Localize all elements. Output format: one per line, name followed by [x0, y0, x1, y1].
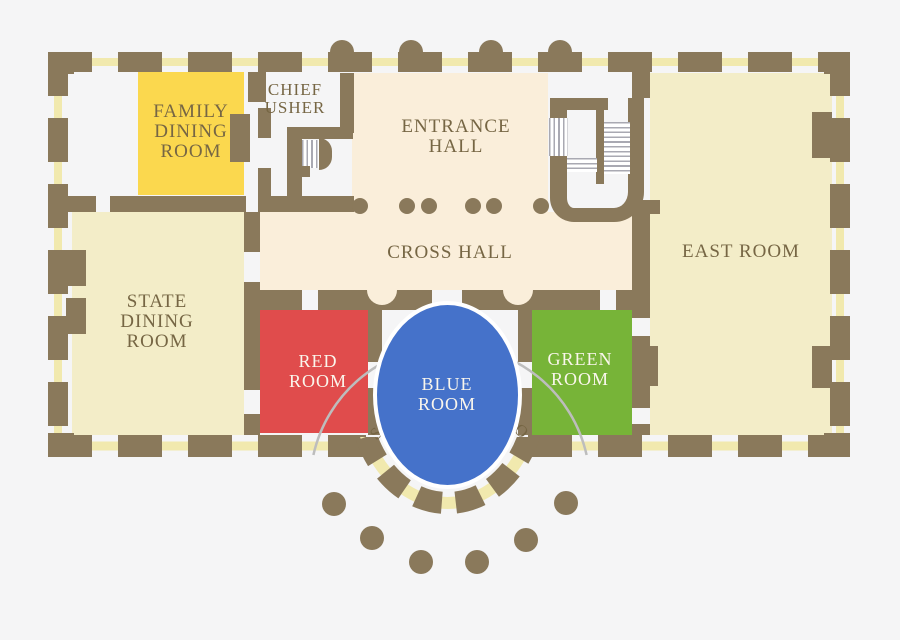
label-line: ROOM	[126, 332, 187, 352]
label-line: HALL	[429, 137, 484, 157]
label-line: RED	[298, 351, 337, 371]
label-line: EAST ROOM	[682, 242, 800, 262]
door-gap-green-east-b	[632, 408, 650, 424]
portico-column-3	[409, 550, 433, 574]
door-gap-state-dining-a	[244, 252, 260, 282]
label-blue-room: BLUE ROOM	[418, 374, 476, 414]
floor-plan: SOUTH PORTICO FAMILY DINING ROOM CHIEF U…	[0, 0, 900, 640]
label-line: ROOM	[289, 371, 347, 391]
label-family-dining: FAMILY DINING ROOM	[153, 102, 229, 162]
door-gap-green-east	[632, 318, 650, 336]
wall-bay-junction-west	[346, 435, 366, 457]
label-chief-usher: CHIEF USHER	[265, 81, 326, 117]
wall-east-room-door-tab	[650, 346, 658, 386]
outer-wall-west	[48, 52, 68, 457]
north-column-2	[399, 40, 423, 53]
wall-family-dining-tab	[230, 114, 250, 162]
grand-staircase-connector	[634, 200, 660, 214]
wall-east-block-b	[812, 346, 832, 388]
label-east-room: EAST ROOM	[682, 242, 800, 262]
outer-wall-south-east	[528, 435, 850, 457]
hall-column-3	[421, 198, 437, 214]
portico-column-6	[554, 491, 578, 515]
north-column-3	[479, 40, 503, 53]
portico-column-4	[465, 550, 489, 574]
grand-staircase-divider	[596, 106, 604, 184]
grand-staircase-steps-west	[549, 118, 568, 156]
label-line: ENTRANCE	[401, 117, 510, 137]
label-entrance-hall: ENTRANCE HALL	[401, 117, 510, 157]
label-line: CROSS HALL	[387, 243, 513, 263]
outer-wall-north	[48, 52, 850, 72]
label-line: CHIEF	[268, 81, 322, 99]
door-gap-state-dining-b	[244, 390, 260, 414]
north-column-4	[548, 40, 572, 53]
portico-column-2	[360, 526, 384, 550]
wall-east-room-west-a	[632, 72, 650, 98]
door-gap-cross-a	[302, 290, 318, 310]
portico-column-1	[322, 492, 346, 516]
label-line: DINING	[154, 122, 228, 142]
label-green-room: GREEN ROOM	[548, 349, 613, 389]
wall-corner-sw	[48, 433, 74, 457]
north-column-1	[330, 40, 354, 53]
label-line: GREEN	[548, 349, 613, 369]
wall-usher-west-lower	[258, 168, 271, 196]
door-gap-pantry	[96, 196, 110, 212]
wall-west-block-a	[66, 250, 86, 286]
service-stair-wall	[319, 138, 332, 170]
wall-usher-mid-v	[287, 127, 302, 207]
wall-east-room-west-c	[632, 336, 650, 408]
wall-bay-junction-east	[528, 435, 548, 457]
wall-corner-se	[824, 433, 850, 457]
wall-west-block-b	[66, 298, 86, 334]
wall-east-room-west-b	[632, 212, 650, 318]
label-line: STATE	[127, 292, 187, 312]
hall-column-5	[486, 198, 502, 214]
wall-east-room-west-d	[632, 424, 650, 435]
hall-column-4	[465, 198, 481, 214]
label-line: BLUE	[421, 374, 472, 394]
label-line: FAMILY	[153, 102, 229, 122]
grand-staircase-steps-landing	[567, 158, 597, 172]
label-line: ROOM	[160, 142, 221, 162]
label-cross-hall: CROSS HALL	[387, 243, 513, 263]
service-stair-tab	[301, 166, 310, 177]
wall-east-block-a	[812, 112, 832, 158]
hall-column-2	[399, 198, 415, 214]
label-state-dining: STATE DINING ROOM	[120, 292, 194, 352]
hall-column-6	[533, 198, 549, 214]
door-gap-cross-c	[600, 290, 616, 310]
label-red-room: RED ROOM	[289, 351, 347, 391]
service-stair-steps	[302, 140, 320, 168]
portico-column-5	[514, 528, 538, 552]
wall-corner-ne	[824, 52, 850, 74]
label-line: DINING	[120, 312, 194, 332]
label-line: ROOM	[418, 394, 476, 414]
outer-wall-south-west	[48, 435, 366, 457]
wall-under-family-dining	[68, 196, 246, 212]
wall-usher-east	[340, 73, 354, 133]
label-line: ROOM	[551, 369, 609, 389]
wall-usher-a	[248, 72, 266, 102]
grand-staircase-steps-main	[604, 122, 630, 174]
wall-usher-south	[258, 196, 354, 212]
wall-corner-nw	[48, 52, 74, 74]
label-line: USHER	[265, 99, 326, 117]
outer-wall-east	[830, 52, 850, 457]
hall-column-1	[352, 198, 368, 214]
